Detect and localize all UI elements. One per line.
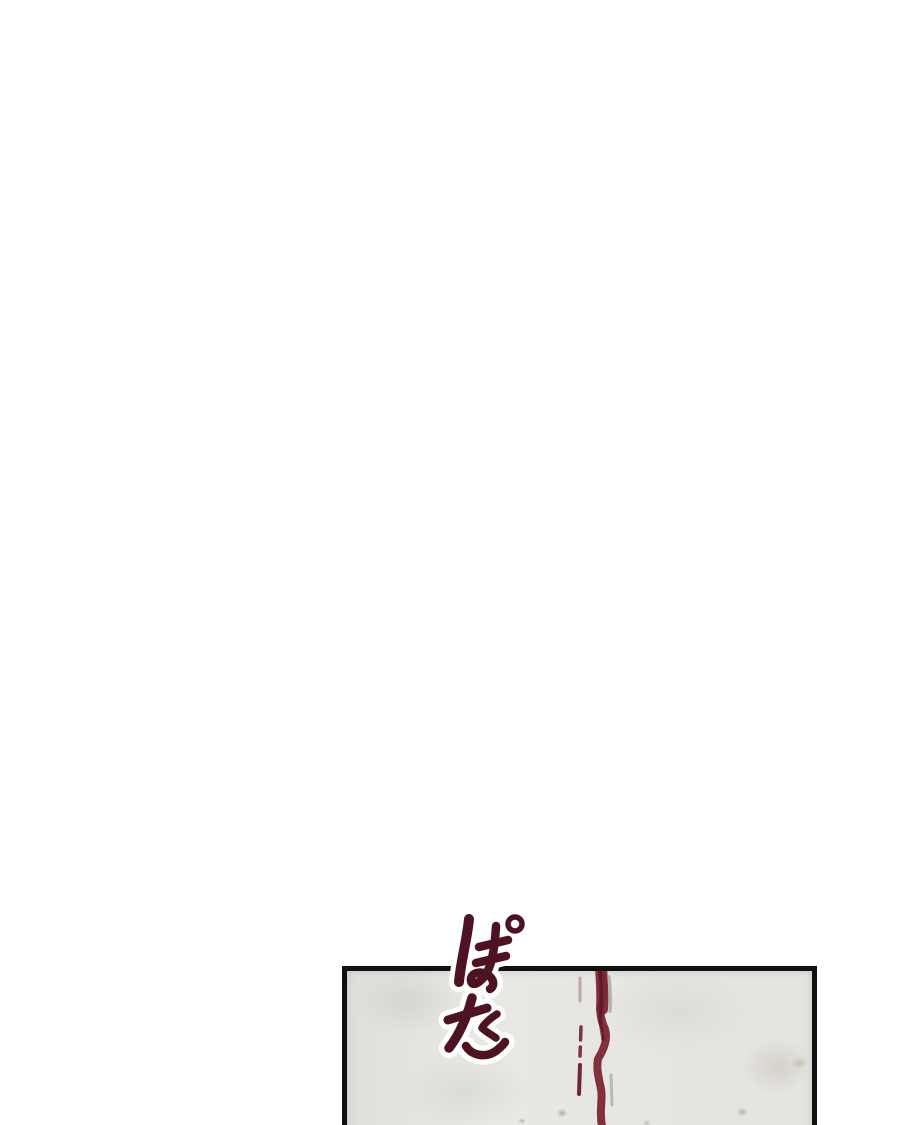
shadow-streak-upper [609, 977, 610, 1011]
manga-panel [342, 966, 817, 1125]
page-background: ぽた [0, 0, 900, 1125]
blood-drip-core [600, 971, 603, 1039]
side-drip-lower [579, 1065, 580, 1094]
sfx-pota-lettering [435, 900, 535, 1080]
blood-drip-graphic [347, 971, 812, 1125]
shadow-streak-lower [611, 1075, 612, 1105]
side-drip-middle [580, 1027, 581, 1056]
sfx-pota: ぽた [435, 900, 535, 1080]
blood-drip-dark-core [600, 971, 603, 1039]
